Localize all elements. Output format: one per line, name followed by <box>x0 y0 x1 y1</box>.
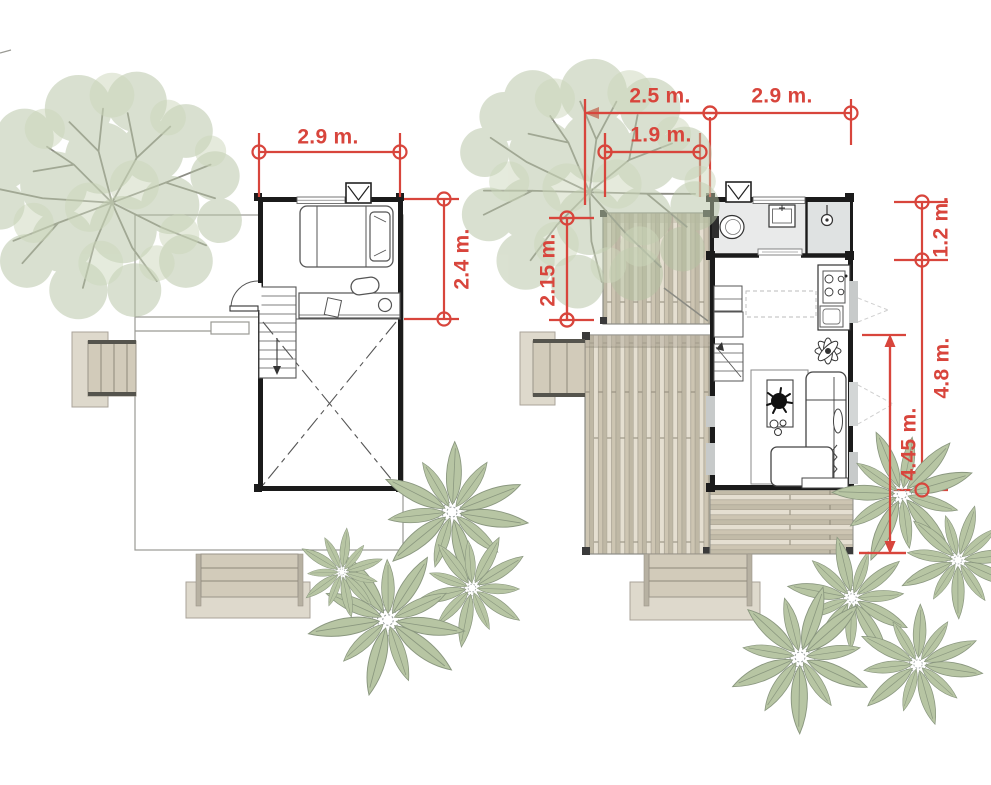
roof-vent-icon <box>726 182 751 202</box>
plant-icon <box>815 338 841 364</box>
unit-top-window <box>753 197 805 204</box>
dim-label-loft-depth: 2.4 m. <box>452 228 473 289</box>
loft-window <box>297 197 345 204</box>
sliding-door <box>758 249 802 255</box>
dim-label-deck-width: 2.5 m. <box>629 86 690 107</box>
loft-stairs <box>259 287 296 378</box>
deck-side-stairs <box>520 332 585 405</box>
toilet-icon <box>712 216 744 239</box>
bottom-stairs <box>186 554 310 618</box>
roof-vent-icon <box>346 183 371 203</box>
floor-plan-sheet: 2.9 m. 2.4 m. 2.5 m. 2.9 m. 1.9 m. 2.15 … <box>0 0 991 785</box>
main-deck <box>582 332 711 555</box>
coffee-table <box>767 380 793 436</box>
dim-label-loft-width: 2.9 m. <box>297 127 358 148</box>
cabinets <box>714 286 743 337</box>
kitchen-counter <box>818 265 850 330</box>
floor-plan-drawing <box>0 0 991 785</box>
bathroom <box>706 202 854 260</box>
dim-label-living-depth: 4.8 m. <box>932 337 953 398</box>
dim-label-side-deck-depth: 2.15 m. <box>538 233 559 306</box>
lower-deck <box>710 490 853 554</box>
bed <box>300 206 393 267</box>
left-side-stairs <box>72 332 136 407</box>
sink-icon <box>769 205 795 227</box>
dim-label-inner-width: 1.9 m. <box>630 125 691 146</box>
house-unit <box>706 182 893 492</box>
interior-stairs <box>714 342 743 381</box>
stray-branch-mark <box>0 50 11 53</box>
dim-label-total-depth: 4.45 m. <box>899 407 920 480</box>
deck-bottom-stairs <box>630 554 760 620</box>
dim-label-bathroom-depth: 1.2 m. <box>931 196 952 257</box>
dim-label-unit-width: 2.9 m. <box>751 86 812 107</box>
desk <box>299 293 400 318</box>
